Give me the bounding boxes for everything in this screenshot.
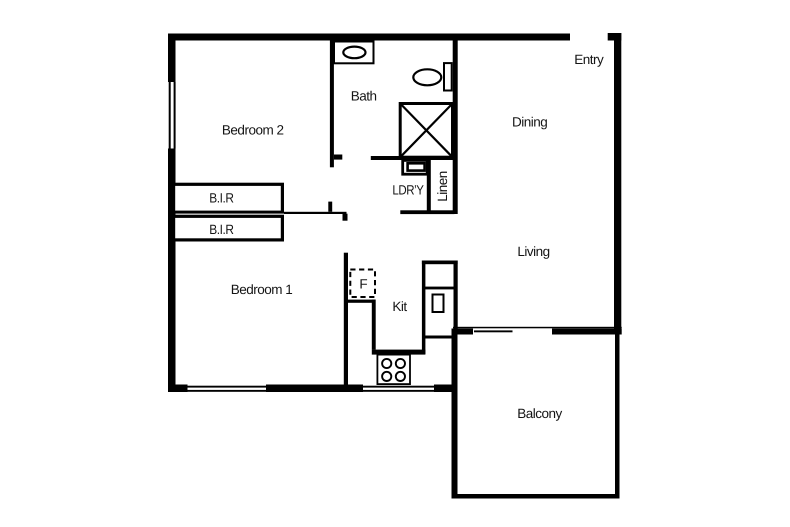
svg-text:Entry: Entry [574,52,604,67]
svg-text:Dining: Dining [512,115,547,130]
svg-text:B.I.R: B.I.R [209,191,234,206]
svg-text:Bath: Bath [351,88,377,103]
svg-text:Living: Living [517,244,549,259]
svg-text:Balcony: Balcony [517,406,562,421]
svg-text:Kit: Kit [392,299,407,314]
svg-text:F: F [359,277,367,292]
svg-text:LDR’Y: LDR’Y [392,183,423,198]
svg-text:B.I.R: B.I.R [209,222,234,237]
svg-text:Bedroom 2: Bedroom 2 [222,122,284,137]
svg-text:Linen: Linen [435,171,450,202]
svg-text:Bedroom 1: Bedroom 1 [231,282,293,297]
